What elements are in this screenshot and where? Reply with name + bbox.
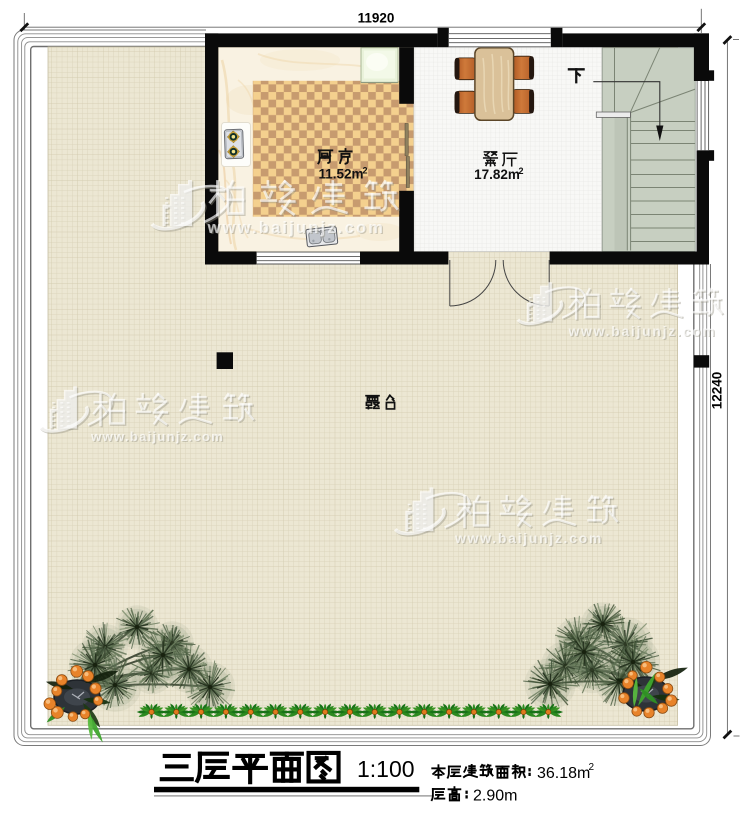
svg-text:17.82m: 17.82m bbox=[474, 167, 520, 182]
svg-text:2: 2 bbox=[363, 166, 368, 176]
svg-text:www.baijunjz.com: www.baijunjz.com bbox=[568, 324, 717, 339]
svg-text:11920: 11920 bbox=[358, 11, 395, 26]
svg-text:2: 2 bbox=[589, 762, 595, 773]
svg-text:www.baijunjz.com: www.baijunjz.com bbox=[207, 219, 386, 237]
svg-text:11.52m: 11.52m bbox=[318, 167, 363, 182]
svg-text:1:100: 1:100 bbox=[357, 756, 415, 782]
svg-text:www.baijunjz.com: www.baijunjz.com bbox=[90, 429, 224, 444]
svg-text:www.baijunjz.com: www.baijunjz.com bbox=[454, 530, 603, 546]
svg-text:12240: 12240 bbox=[710, 372, 725, 410]
svg-text:2.90m: 2.90m bbox=[473, 788, 517, 805]
svg-text:2: 2 bbox=[519, 166, 524, 176]
svg-text:36.18m: 36.18m bbox=[537, 765, 590, 782]
